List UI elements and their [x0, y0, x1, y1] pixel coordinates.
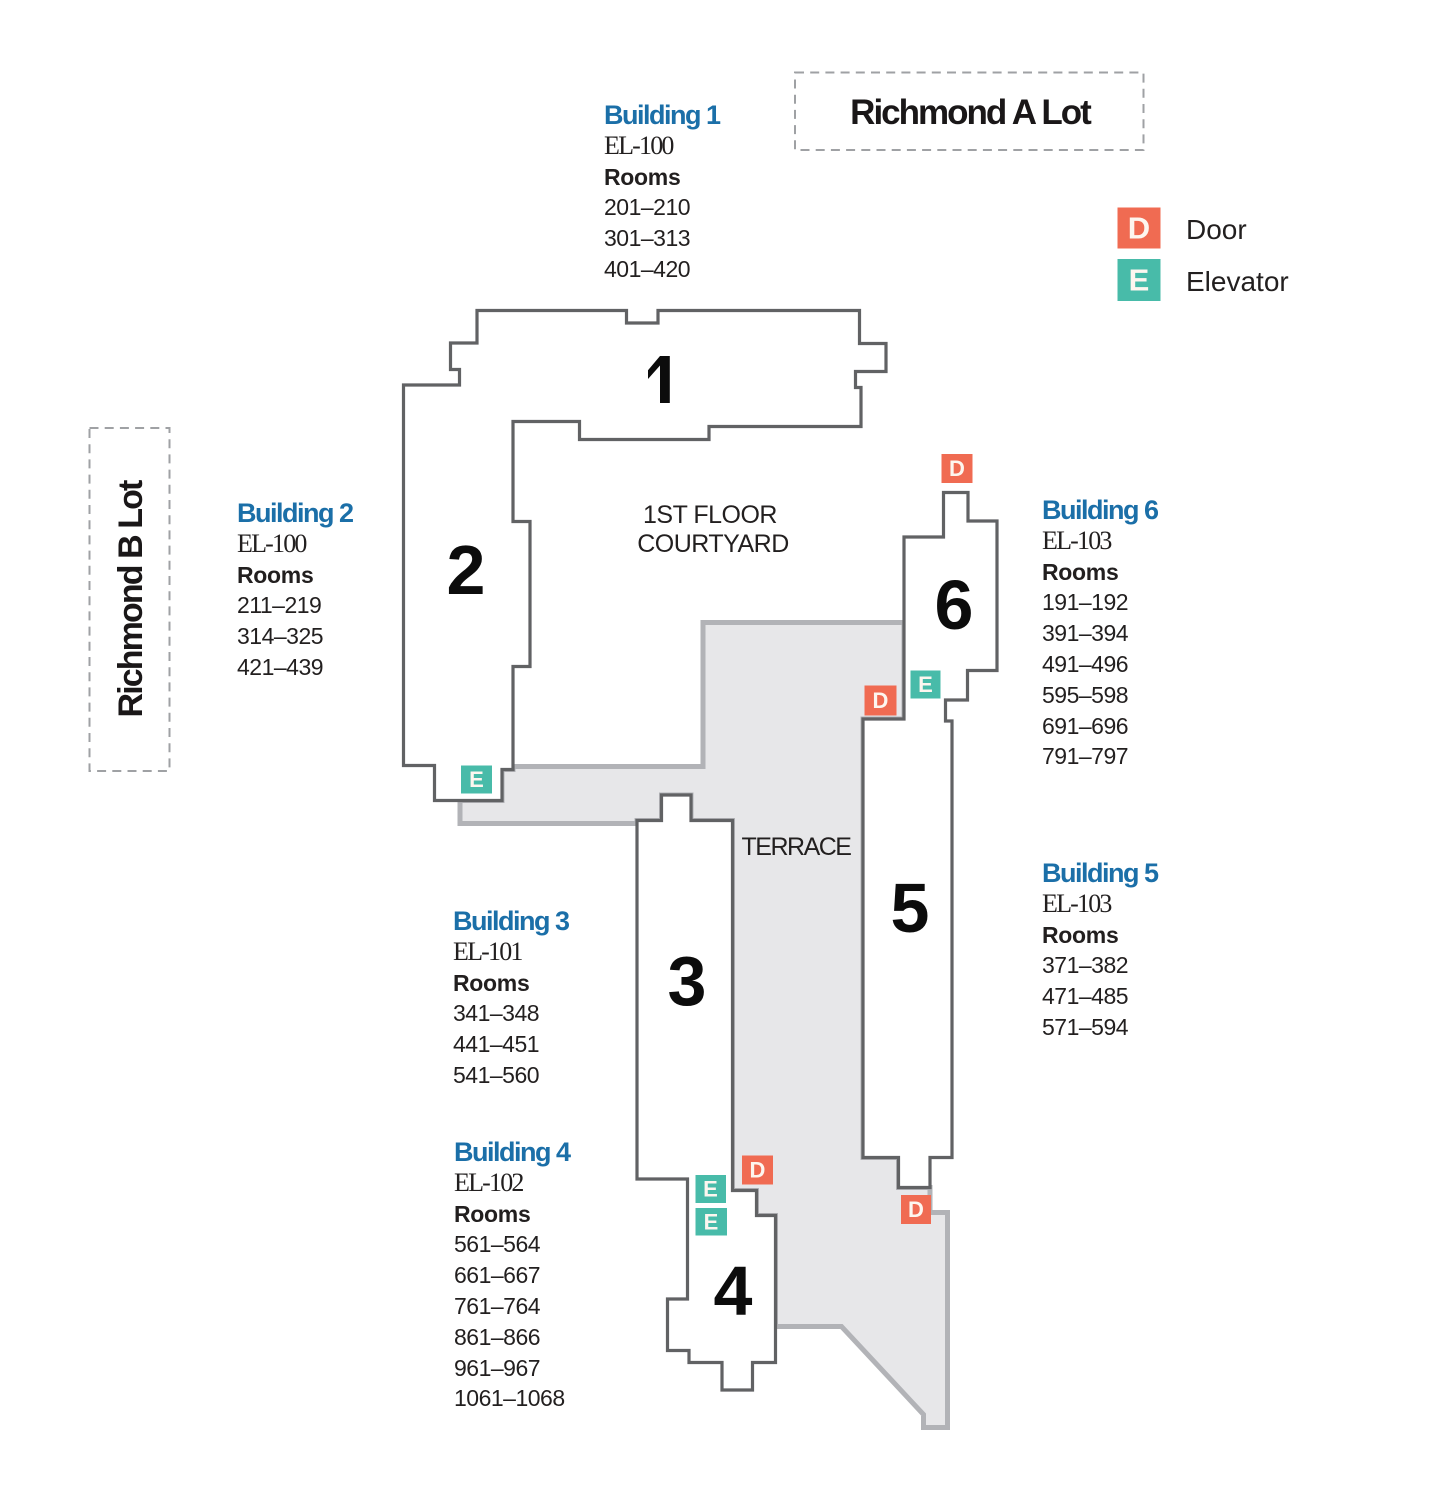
svg-text:4: 4 — [714, 1252, 753, 1330]
svg-text:5: 5 — [891, 869, 930, 947]
svg-text:D: D — [873, 688, 889, 713]
svg-text:Door: Door — [1186, 214, 1247, 245]
svg-text:COURTYARD: COURTYARD — [637, 530, 789, 558]
svg-text:D: D — [908, 1197, 924, 1222]
svg-text:E: E — [918, 672, 933, 697]
svg-text:Elevator: Elevator — [1186, 266, 1289, 297]
svg-text:6: 6 — [935, 566, 974, 644]
svg-text:2: 2 — [447, 531, 486, 609]
svg-text:TERRACE: TERRACE — [742, 833, 852, 861]
svg-text:3: 3 — [668, 942, 707, 1020]
svg-text:D: D — [1128, 211, 1150, 246]
svg-text:E: E — [469, 767, 484, 792]
svg-text:D: D — [750, 1158, 766, 1183]
svg-text:E: E — [1129, 263, 1150, 298]
svg-text:Richmond B Lot: Richmond B Lot — [112, 480, 150, 717]
svg-text:E: E — [704, 1210, 719, 1235]
svg-text:D: D — [949, 456, 965, 481]
svg-text:Richmond A Lot: Richmond A Lot — [850, 93, 1092, 132]
svg-text:1ST FLOOR: 1ST FLOOR — [643, 501, 777, 529]
svg-text:E: E — [703, 1177, 718, 1202]
